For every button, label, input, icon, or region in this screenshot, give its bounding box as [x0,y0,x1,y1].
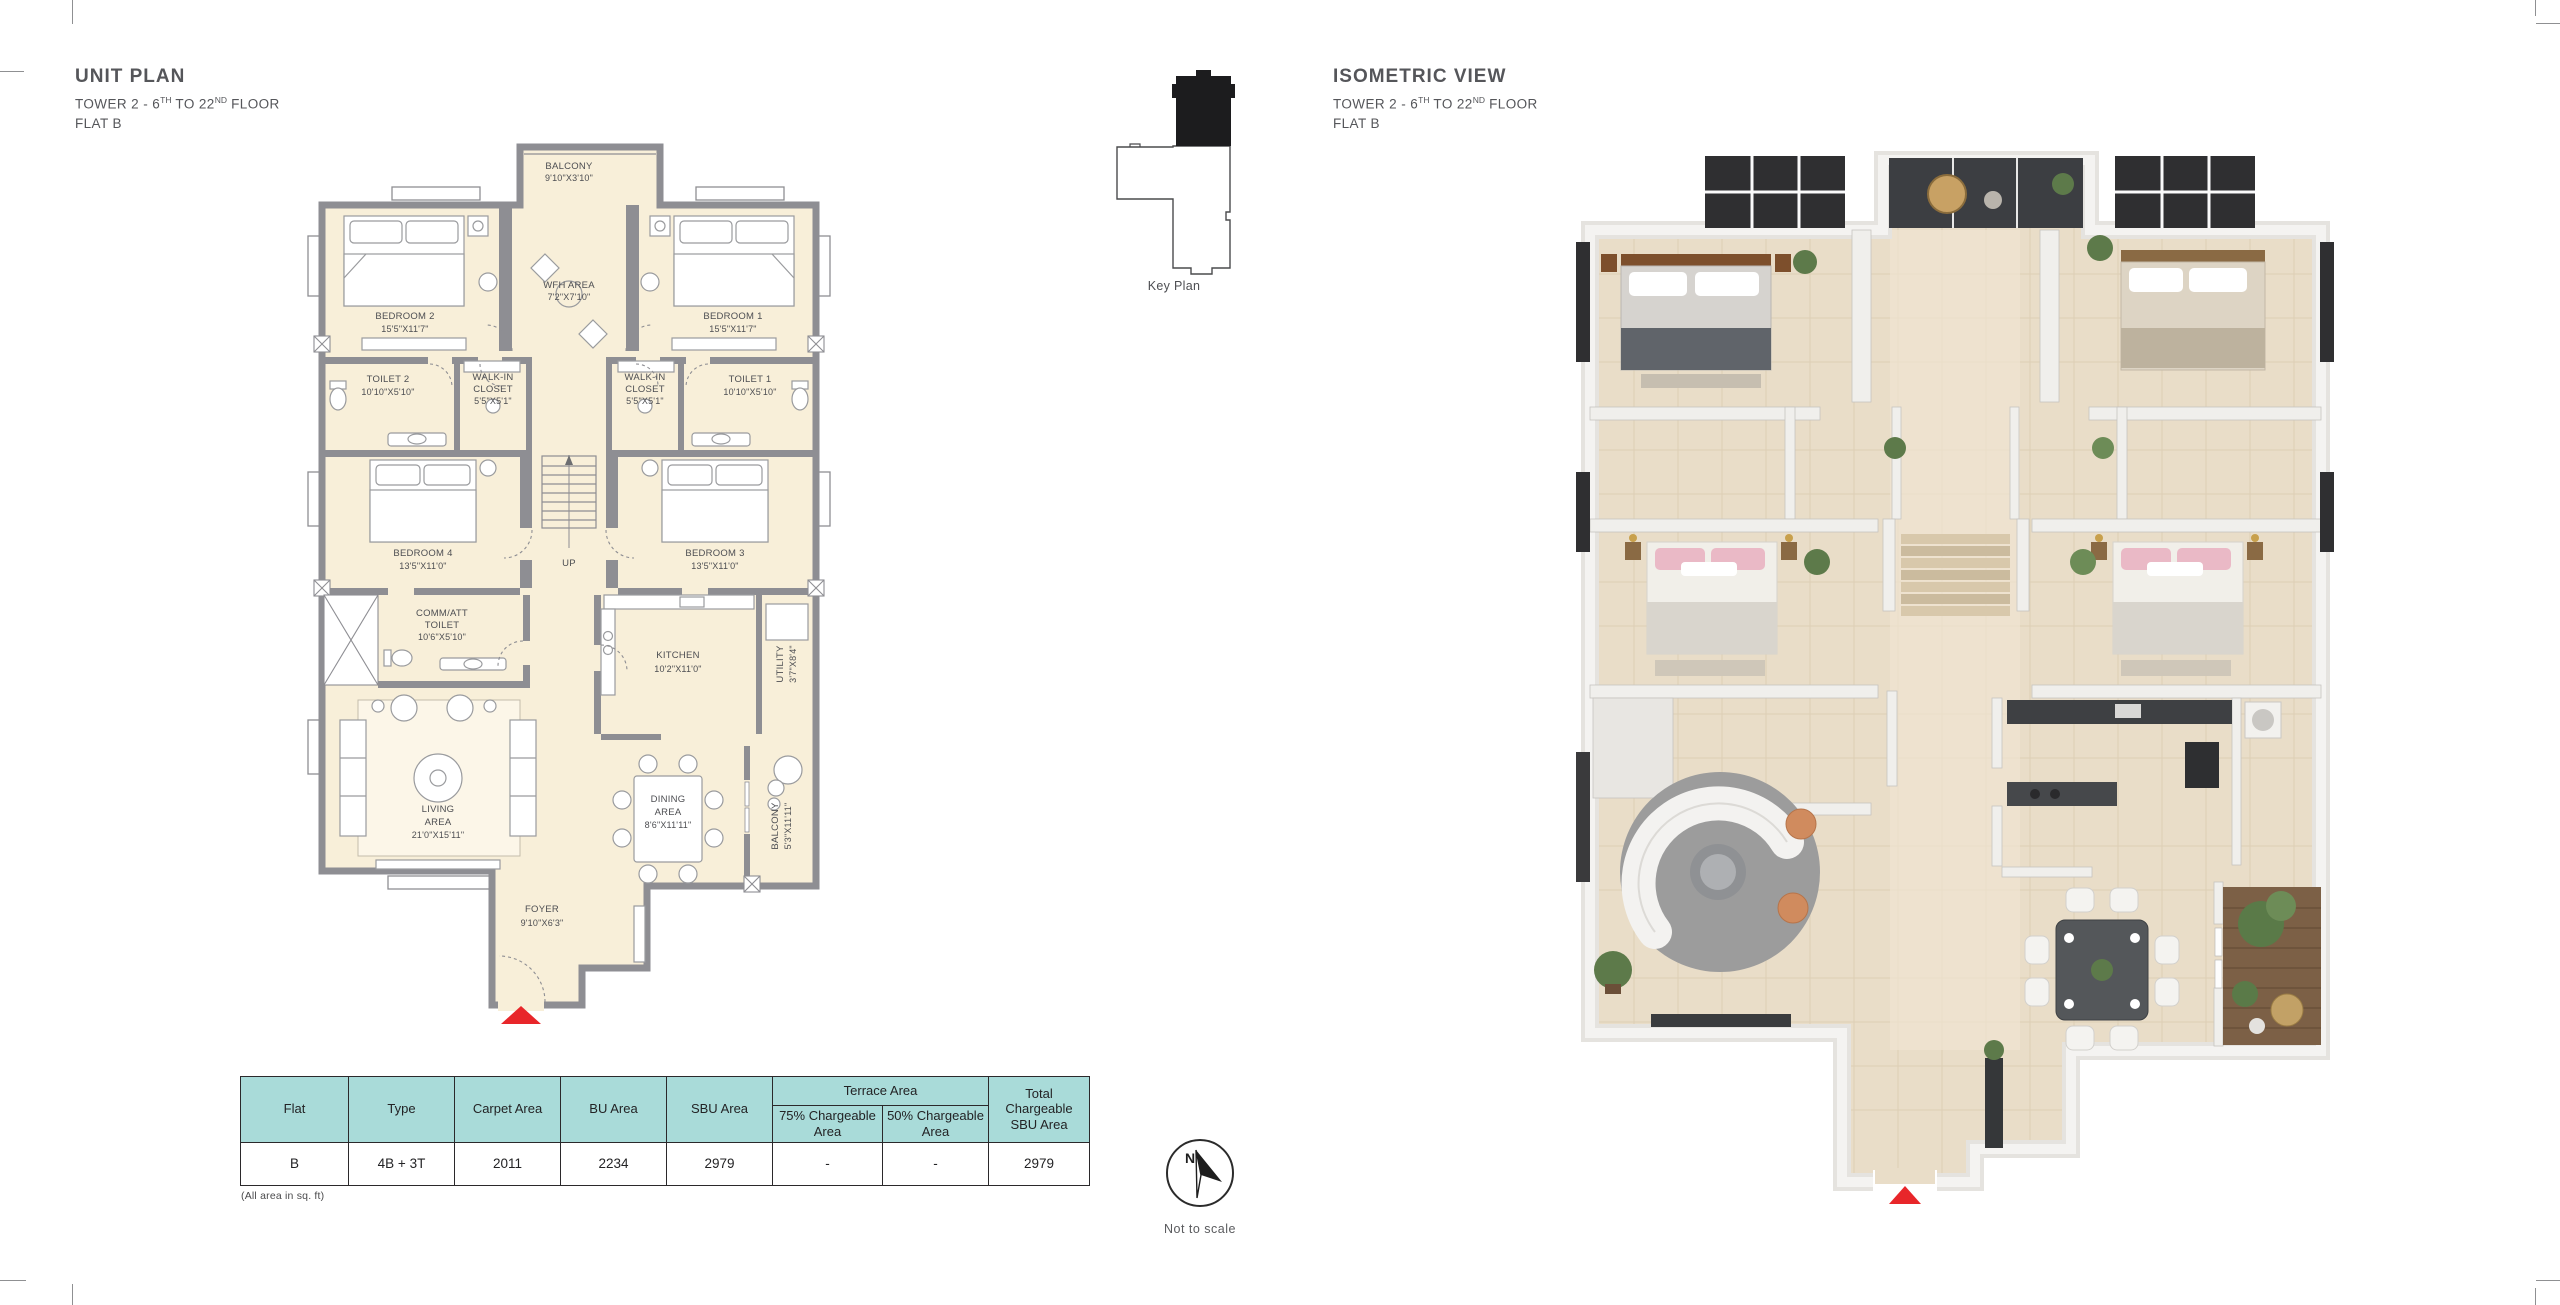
svg-text:15'5"X11'7": 15'5"X11'7" [381,324,428,334]
brochure-page: UNIT PLAN TOWER 2 - 6TH TO 22ND FLOOR FL… [0,0,2560,1305]
iso-foyer-console [1985,1058,2003,1148]
svg-text:AREA: AREA [425,817,452,828]
col-header-terrace-50: 50% Chargeable Area [883,1106,989,1143]
unit-floor-plan: BALCONY 9'10"X3'10" WFH AREA 7'2"X7'10" … [292,136,882,1051]
compass-section: N Not to scale [1152,1130,1248,1236]
room-label-living: LIVING [422,804,455,815]
room-label-comm-toilet: COMM/ATT [416,608,468,619]
svg-text:AREA: AREA [655,807,682,818]
cell-carpet: 2011 [455,1142,561,1185]
cell-flat: B [241,1142,349,1185]
table-footnote: (All area in sq. ft) [241,1190,1090,1202]
svg-text:8'6"X11'11": 8'6"X11'11" [645,820,692,830]
unit-plan-flat: FLAT B [75,114,280,134]
svg-text:3'7"X8'4": 3'7"X8'4" [788,645,798,683]
col-header-total: Total Chargeable SBU Area [989,1077,1090,1143]
isometric-title: ISOMETRIC VIEW [1333,66,1538,88]
room-label-toilet2: TOILET 2 [367,374,410,385]
svg-text:15'5"X11'7": 15'5"X11'7" [709,324,756,334]
room-label-balcony-bottom: BALCONY [770,802,781,850]
svg-text:13'5"X11'0": 13'5"X11'0" [691,561,738,571]
room-label-kitchen: KITCHEN [656,650,699,661]
room-label-bedroom3: BEDROOM 3 [685,548,744,559]
col-header-type: Type [349,1077,455,1143]
col-header-terrace-75: 75% Chargeable Area [773,1106,883,1143]
cell-terrace-75: - [773,1142,883,1185]
room-label-bedroom4: BEDROOM 4 [393,548,452,559]
col-header-flat: Flat [241,1077,349,1143]
room-label-bedroom1: BEDROOM 1 [703,311,762,322]
col-header-sbu: SBU Area [667,1077,773,1143]
room-label-dining: DINING [651,794,686,805]
isometric-render [1555,142,2355,1212]
svg-text:9'10"X6'3": 9'10"X6'3" [521,918,564,928]
col-header-carpet: Carpet Area [455,1077,561,1143]
cell-type: 4B + 3T [349,1142,455,1185]
svg-text:5'3"X11'11": 5'3"X11'11" [783,803,793,850]
unit-plan-title: UNIT PLAN [75,66,280,88]
isometric-flat: FLAT B [1333,114,1538,134]
svg-text:10'10"X5'10": 10'10"X5'10" [723,387,776,397]
svg-text:CLOSET: CLOSET [625,384,665,395]
isometric-title-block: ISOMETRIC VIEW TOWER 2 - 6TH TO 22ND FLO… [1333,66,1538,134]
svg-text:13'5"X11'0": 13'5"X11'0" [399,561,446,571]
col-header-terrace-group: Terrace Area [773,1077,989,1106]
table-row: B 4B + 3T 2011 2234 2979 - - 2979 [241,1142,1090,1185]
key-plan-outline [1117,146,1230,274]
room-label-up: UP [562,558,576,569]
iso-stairs [1901,534,2010,616]
svg-text:5'5"X5'1": 5'5"X5'1" [474,396,512,406]
cell-terrace-50: - [883,1142,989,1185]
svg-text:10'2"X11'0": 10'2"X11'0" [654,664,701,674]
svg-text:CLOSET: CLOSET [473,384,513,395]
cell-total: 2979 [989,1142,1090,1185]
key-plan-label: Key Plan [1148,279,1200,293]
room-label-balcony-top: BALCONY [545,161,593,172]
svg-text:10'10"X5'10": 10'10"X5'10" [361,387,414,397]
col-header-bu: BU Area [561,1077,667,1143]
room-label-wfh: WFH AREA [543,280,595,291]
unit-plan-subtitle: TOWER 2 - 6TH TO 22ND FLOOR [75,94,280,114]
key-plan-flat-b-highlight [1172,70,1235,146]
room-label-toilet1: TOILET 1 [729,374,772,385]
unit-plan-title-block: UNIT PLAN TOWER 2 - 6TH TO 22ND FLOOR FL… [75,66,280,134]
svg-text:TOILET: TOILET [425,620,460,631]
room-label-utility: UTILITY [775,645,786,683]
iso-balcony [2223,887,2321,1045]
cell-bu: 2234 [561,1142,667,1185]
cell-sbu: 2979 [667,1142,773,1185]
svg-text:9'10"X3'10": 9'10"X3'10" [545,173,593,183]
room-label-bedroom2: BEDROOM 2 [375,311,434,322]
room-label-closet-left: WALK-IN [473,372,514,383]
area-table: Flat Type Carpet Area BU Area SBU Area T… [240,1076,1090,1186]
svg-text:10'6"X5'10": 10'6"X5'10" [418,632,466,642]
key-plan: Key Plan [1108,62,1248,297]
area-table-section: Flat Type Carpet Area BU Area SBU Area T… [240,1076,1090,1202]
svg-text:21'0"X15'11": 21'0"X15'11" [412,830,465,840]
room-label-foyer: FOYER [525,904,559,915]
not-to-scale-note: Not to scale [1152,1222,1248,1236]
svg-text:7'2"X7'10": 7'2"X7'10" [548,292,591,302]
compass-icon: N [1152,1130,1248,1216]
room-label-closet-right: WALK-IN [625,372,666,383]
isometric-subtitle: TOWER 2 - 6TH TO 22ND FLOOR [1333,94,1538,114]
svg-text:5'5"X5'1": 5'5"X5'1" [626,396,664,406]
compass-north-label: N [1185,1150,1195,1166]
